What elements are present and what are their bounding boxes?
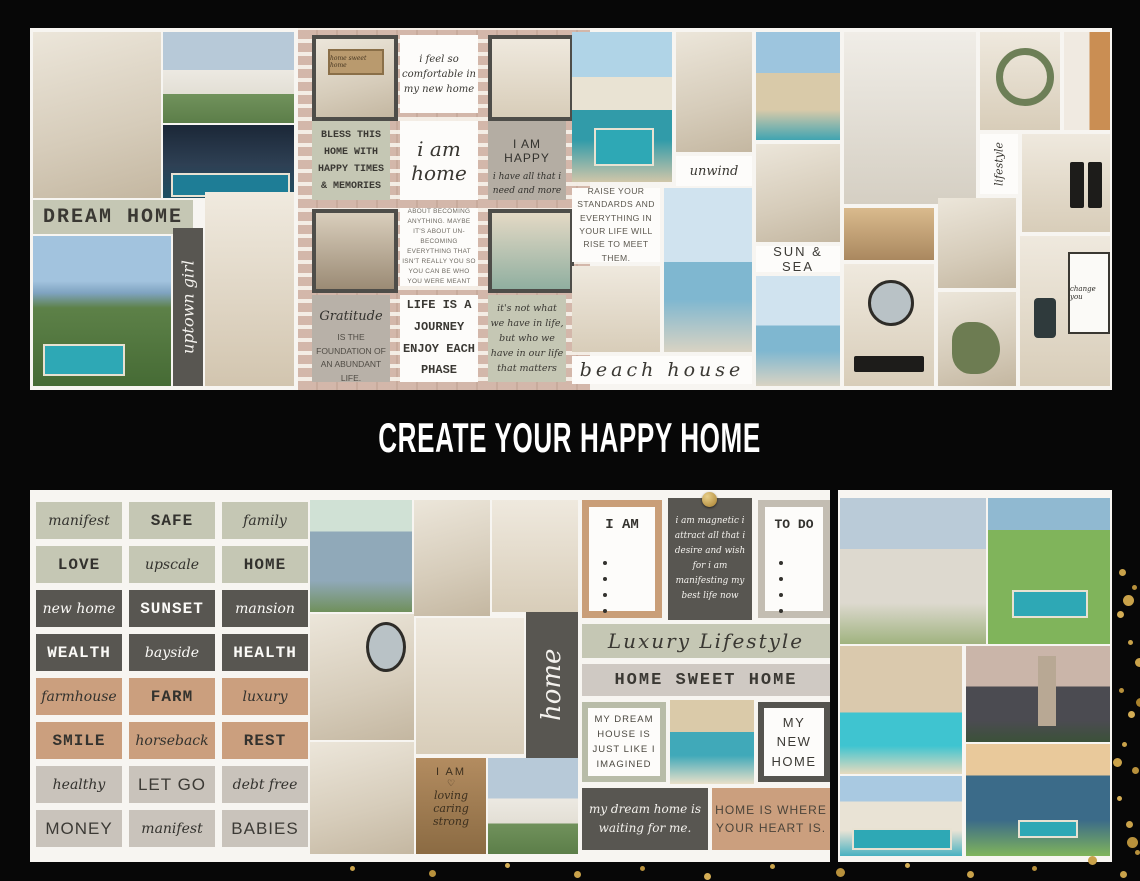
- wreath-bells-photo: [980, 32, 1060, 130]
- sticker-farmhouse: farmhouse: [36, 678, 122, 715]
- surfboard-living-room-photo: [756, 144, 840, 242]
- gratitude-card: Gratitude IS THE FOUNDATION OF AN ABUNDA…: [312, 295, 390, 382]
- sticker-family: family: [222, 502, 308, 539]
- home-vertical-strip: home: [526, 612, 578, 758]
- maybe-journey-card: MAYBE THE JOURNEY ISN'T SO MUCH ABOUT BE…: [400, 208, 478, 286]
- map-living-room-photo: [416, 618, 524, 754]
- i-am-wood-card: I AM ♡ loving caring strong: [416, 758, 486, 854]
- gold-confetti-dots: [0, 0, 5, 5]
- oval-mirror: [366, 622, 406, 672]
- beach-house-pool-photo: [572, 32, 672, 182]
- cabana-pool-photo: [488, 209, 574, 293]
- futuristic-lake-house-photo: [966, 744, 1110, 856]
- gratitude-word: Gratitude: [312, 309, 390, 324]
- sticker-debt-free: debt free: [222, 766, 308, 803]
- black-soap-bottles-photo: [1022, 134, 1110, 232]
- rice-field-villa-photo: [988, 498, 1110, 644]
- page-title: CREATE YOUR HAPPY HOME: [0, 416, 1140, 460]
- beach-house-banner: beach house: [572, 356, 752, 384]
- sticker-farm: FARM: [129, 678, 215, 715]
- sticker-manifest-2: manifest: [129, 810, 215, 847]
- bless-this-home-card: BLESS THIS HOME WITH HAPPY TIMES & MEMOR…: [312, 121, 390, 200]
- sticker-luxury: luxury: [222, 678, 308, 715]
- home-is-where-heart-card: HOME IS WHERE YOUR HEART IS.: [712, 788, 830, 850]
- white-farmhouse-photo: [488, 758, 578, 854]
- wood-word-loving: loving: [416, 789, 486, 802]
- patio-fireplace-photo: [312, 209, 398, 293]
- villa-pool: [1012, 590, 1088, 618]
- eucalyptus-vase-photo: change you: [1020, 236, 1110, 386]
- fluted-vase: [1034, 298, 1056, 338]
- to-do-list-title: TO DO: [765, 517, 823, 532]
- i-am-happy-card: I AM HAPPY i have all that i need and mo…: [488, 121, 566, 200]
- ocean-view-living-room-photo: [33, 32, 161, 198]
- wood-word-caring: caring: [416, 802, 486, 815]
- sticker-home: HOME: [222, 546, 308, 583]
- classical-mansion-photo: [840, 498, 986, 644]
- stone-bedroom-ocean-photo: [840, 646, 962, 774]
- i-am-bullet-list: [603, 561, 607, 613]
- sticker-wealth: WEALTH: [36, 634, 122, 671]
- dream-home-waiting-card: my dream home is waiting for me.: [582, 788, 708, 850]
- oil-bottles-photo: [938, 198, 1016, 288]
- sun-and-sea-card: SUN & SEA: [756, 246, 840, 272]
- to-do-bullet-list: [779, 561, 783, 613]
- lifestyle-card: lifestyle: [980, 134, 1018, 194]
- mountain-villa-pool-photo: [33, 236, 171, 386]
- gold-pushpin: [702, 492, 717, 507]
- sticker-healthy: healthy: [36, 766, 122, 803]
- wood-word-strong: strong: [416, 815, 486, 828]
- sticker-sunset: SUNSET: [129, 590, 215, 627]
- stone-chimney: [1038, 656, 1056, 726]
- entry-console-photo: [310, 614, 414, 740]
- life-is-a-journey-card: LIFE IS A JOURNEY ENJOY EACH PHASE: [400, 295, 478, 382]
- sticker-manifest: manifest: [36, 502, 122, 539]
- round-mirror: [868, 280, 914, 326]
- twin-villa-pool: [852, 828, 952, 850]
- sticker-rest: REST: [222, 722, 308, 759]
- i-am-happy-title: I AM HAPPY: [488, 137, 566, 165]
- comfortable-card: i feel so comfortable in my new home: [400, 35, 478, 113]
- soap-bottle: [1088, 162, 1102, 208]
- magnetic-card: i am magnetic i attract all that i desir…: [668, 498, 752, 620]
- kitchen-shelves-photo: [492, 500, 578, 612]
- white-farmhouse-exterior-photo: [163, 32, 294, 123]
- beach-house-pool: [594, 128, 654, 166]
- ocean-view-great-room-photo: [664, 188, 752, 352]
- sticker-new-home: new home: [36, 590, 122, 627]
- cozy-bedroom-photo: [310, 742, 414, 854]
- home-sweet-home-banner: HOME SWEET HOME: [582, 664, 830, 696]
- rotunda-interior-photo: [205, 192, 294, 386]
- heart-icon: ♡: [416, 778, 486, 789]
- mantel-mirror-fireplace-photo: [844, 264, 934, 386]
- i-am-list-card: I AM: [582, 500, 662, 618]
- unwind-card: unwind: [676, 156, 752, 186]
- home-sweet-home-sign: home sweet home: [328, 49, 384, 75]
- sticker-horseback: horseback: [129, 722, 215, 759]
- sticker-love: LOVE: [36, 546, 122, 583]
- my-dream-house-card: MY DREAM HOUSE IS JUST LIKE I IMAGINED: [582, 702, 666, 782]
- my-new-home-card: MY NEW HOME: [758, 702, 830, 782]
- soap-bottle: [1070, 162, 1084, 208]
- sticker-upscale: upscale: [129, 546, 215, 583]
- sticker-safe: SAFE: [129, 502, 215, 539]
- home-sign-sofa-photo: home sweet home: [312, 35, 398, 121]
- sticker-mansion: mansion: [222, 590, 308, 627]
- sticker-babies: BABIES: [222, 810, 308, 847]
- raise-standards-card: RAISE YOUR STANDARDS AND EVERYTHING IN Y…: [572, 188, 660, 262]
- bottom-vision-board: manifest SAFE family LOVE upscale HOME n…: [30, 490, 1112, 862]
- script-art-sign: change you: [1068, 252, 1110, 334]
- gratitude-sub: IS THE FOUNDATION OF AN ABUNDANT LIFE.: [312, 331, 390, 385]
- wood-card-title: I AM: [416, 766, 486, 778]
- twin-villas-pool-photo: [840, 776, 962, 856]
- woven-baskets-photo: [844, 208, 934, 260]
- pantry-door-photo: [1064, 32, 1110, 130]
- sticker-money: MONEY: [36, 810, 122, 847]
- top-vision-board: DREAM HOME uptown girl home sweet home i…: [30, 28, 1112, 390]
- i-am-happy-sub: i have all that i need and more: [488, 171, 566, 198]
- sticker-health: HEALTH: [222, 634, 308, 671]
- palm-resort-pool-photo: [756, 32, 840, 140]
- villa-infinity-pool: [43, 344, 125, 376]
- word-sticker-grid: manifest SAFE family LOVE upscale HOME n…: [36, 502, 308, 847]
- dream-home-card: DREAM HOME: [33, 200, 193, 234]
- mediterranean-terrace-photo: [670, 700, 754, 784]
- i-am-list-title: I AM: [589, 517, 655, 533]
- i-am-home-card: i am home: [400, 121, 478, 200]
- sticker-let-go: LET GO: [129, 766, 215, 803]
- mansion-pool-night-photo: [163, 125, 294, 198]
- barn-house-photo: [310, 500, 412, 612]
- butlers-pantry-photo: [414, 500, 490, 616]
- to-do-list-card: TO DO: [758, 500, 830, 618]
- sticker-bayside: bayside: [129, 634, 215, 671]
- wreath: [996, 48, 1054, 106]
- modern-dark-house-photo: [966, 646, 1110, 742]
- green-throw-blanket: [952, 322, 1000, 374]
- sticker-smile: SMILE: [36, 722, 122, 759]
- luxury-closet-photo: [488, 35, 574, 121]
- linear-fireplace: [854, 356, 924, 372]
- beach-view-lounge-photo: [756, 276, 840, 386]
- green-throw-chair-photo: [938, 292, 1016, 386]
- luxury-lifestyle-banner: Luxury Lifestyle: [582, 624, 830, 658]
- lake-house-pool: [1018, 820, 1078, 838]
- arched-staircase-photo: [844, 32, 976, 204]
- coastal-bedroom-photo: [572, 266, 660, 352]
- coastal-entryway-photo: [676, 32, 752, 152]
- who-we-have-card: it's not what we have in life, but who w…: [488, 295, 566, 382]
- uptown-girl-strip: uptown girl: [173, 228, 203, 386]
